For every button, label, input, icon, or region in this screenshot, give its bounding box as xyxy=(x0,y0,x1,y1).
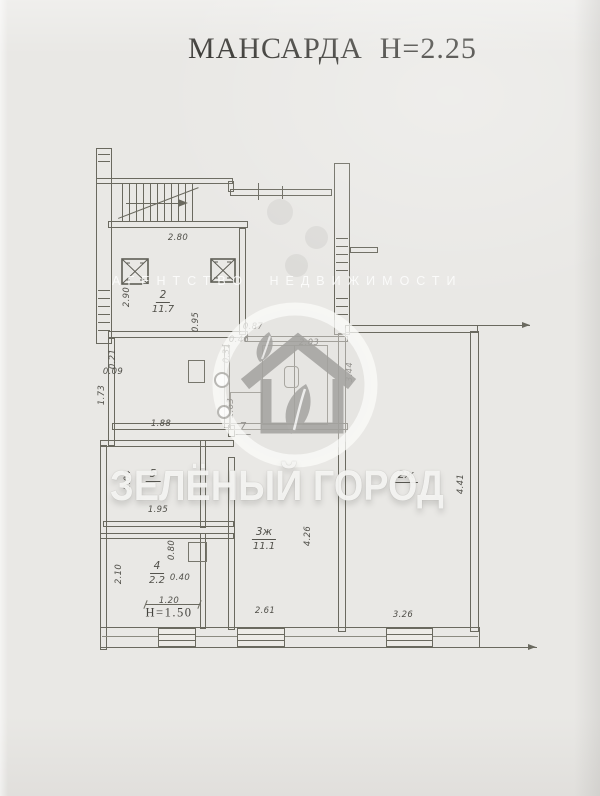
wall-room5-bottom xyxy=(103,521,234,527)
watermark-blob xyxy=(267,199,293,225)
window-room2zh xyxy=(386,628,433,647)
hatch-line xyxy=(98,154,110,155)
dimension-label: 3.26 xyxy=(393,610,413,620)
dimension-label: 1.20 xyxy=(159,596,179,606)
hatch-line xyxy=(98,161,110,162)
hatch-line xyxy=(98,298,110,299)
wall-room4-closet xyxy=(188,542,207,562)
agency-logo-icon xyxy=(210,300,380,470)
door-tick xyxy=(258,183,259,200)
wall-room2-top xyxy=(108,221,248,228)
dimension-label: 2.10 xyxy=(114,564,124,584)
roof-edge-arrow-icon xyxy=(522,322,530,328)
room-number: 4 xyxy=(150,560,165,574)
hatch-line xyxy=(98,290,110,291)
hatch-line xyxy=(336,262,348,263)
watermark-blob xyxy=(305,226,328,249)
hatch-line xyxy=(98,322,110,323)
hatch-line xyxy=(98,306,110,307)
dimension-label: 4.41 xyxy=(456,474,466,494)
room-number: 2 xyxy=(156,289,171,303)
dimension-label: 0.09 xyxy=(103,367,123,377)
dimension-label: 2.90 xyxy=(122,287,132,307)
hatch-line xyxy=(336,246,348,247)
room-label-4: 42.2 xyxy=(149,554,165,586)
room-area: 2.2 xyxy=(149,575,165,586)
dimension-label: 2.80 xyxy=(168,233,188,243)
dimension-label: 0.95 xyxy=(191,312,201,332)
dimension-label: 0.40 xyxy=(170,573,190,583)
wall-niche xyxy=(188,360,205,383)
dimension-label: 2.61 xyxy=(255,606,275,616)
wall-left-outer xyxy=(100,445,107,650)
dimension-label: 1.88 xyxy=(151,419,171,429)
dimension-label: 1.73 xyxy=(97,385,107,405)
hatch-line xyxy=(336,238,348,239)
room-area: 11.1 xyxy=(252,541,276,552)
staircase-direction-arrow xyxy=(126,203,182,204)
hatch-line xyxy=(336,298,348,299)
page-title: МАНСАРДА Н=2.25 xyxy=(188,32,477,66)
dimension-label: 0.80 xyxy=(167,540,177,560)
wall-room4-top xyxy=(100,533,234,539)
door-tick xyxy=(282,186,283,199)
wall-room2zh-right xyxy=(470,331,479,632)
scanned-floor-plan-page: МАНСАРДА Н=2.25 xyxy=(0,0,600,796)
hatch-line xyxy=(336,254,348,255)
watermark-agency-text: АГЕНТСТВО НЕДВИЖИМОСТИ xyxy=(112,274,482,288)
dimension-label: 4.26 xyxy=(303,526,313,546)
hatch-line xyxy=(98,314,110,315)
window-room4 xyxy=(158,628,196,647)
knee-wall-height-note: Н=1.50 xyxy=(146,606,193,621)
room-number: 3ж xyxy=(252,526,276,540)
staircase-arrowhead-icon xyxy=(178,199,188,207)
room-area: 11.7 xyxy=(152,304,174,315)
room-label-3ж: 3ж11.1 xyxy=(252,520,276,552)
wall-stack-arm xyxy=(350,247,378,253)
hatch-line xyxy=(336,270,348,271)
watermark-brand-text: ЗЕЛЁНЫЙ ГОРОД xyxy=(110,462,444,511)
roof-edge-arrow-icon xyxy=(528,644,536,650)
window-room3zh xyxy=(237,628,285,647)
wall-upper-mid xyxy=(230,189,332,196)
